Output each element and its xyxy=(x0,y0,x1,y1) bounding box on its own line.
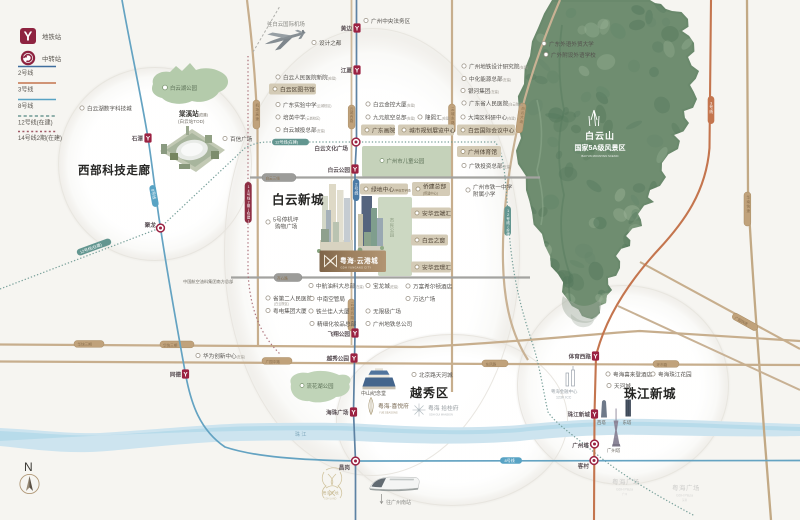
svg-text:YUE SEASONS: YUE SEASONS xyxy=(379,411,398,415)
svg-text:机场高速: 机场高速 xyxy=(256,103,260,121)
svg-text:Y: Y xyxy=(353,330,358,337)
svg-text:广州体育馆: 广州体育馆 xyxy=(468,148,497,156)
svg-text:城市规划展览中心: 城市规划展览中心 xyxy=(409,127,456,135)
svg-text:万达广场: 万达广场 xyxy=(413,295,436,303)
svg-text:百信广场: 百信广场 xyxy=(230,135,253,143)
svg-text:Y: Y xyxy=(352,355,357,362)
svg-text:铁兰佳人大厦: 铁兰佳人大厦 xyxy=(316,308,350,316)
svg-text:天河城: 天河城 xyxy=(614,382,631,390)
svg-text:GDH YUNGANG CITY: GDH YUNGANG CITY xyxy=(341,266,372,269)
svg-text:侨建总部: 侨建总部 xyxy=(423,183,446,191)
svg-text:西部科技走廊: 西部科技走廊 xyxy=(78,163,151,177)
svg-text:附属小学: 附属小学 xyxy=(473,190,496,198)
svg-text:市民公园: 市民公园 xyxy=(390,217,395,238)
svg-text:Y: Y xyxy=(353,166,358,173)
svg-text:广外附设外语学校: 广外附设外语学校 xyxy=(551,51,596,59)
svg-text:无限极广场: 无限极广场 xyxy=(373,308,401,316)
svg-text:海珠广场: 海珠广场 xyxy=(326,409,349,417)
svg-text:越秀区: 越秀区 xyxy=(409,385,449,400)
svg-text:聚龙: 聚龙 xyxy=(144,221,157,229)
svg-text:珠江新城: 珠江新城 xyxy=(568,411,591,419)
svg-text:白云山: 白云山 xyxy=(585,130,615,141)
svg-text:粤海喜来登酒店: 粤海喜来登酒店 xyxy=(613,371,653,379)
svg-text:珠 江: 珠 江 xyxy=(295,431,306,438)
svg-text:Y: Y xyxy=(593,353,598,360)
svg-text:云城西路: 云城西路 xyxy=(351,303,355,320)
svg-text:购物广场: 购物广场 xyxy=(275,223,298,231)
svg-text:中南空管局: 中南空管局 xyxy=(317,295,345,303)
svg-text:广州中央法务区: 广州中央法务区 xyxy=(371,17,411,25)
svg-text:GDH LAND: GDH LAND xyxy=(324,498,337,501)
svg-text:东塔: 东塔 xyxy=(623,419,632,426)
svg-text:东风路: 东风路 xyxy=(486,362,497,367)
svg-text:白云公园: 白云公园 xyxy=(328,166,351,174)
svg-text:Y: Y xyxy=(146,135,151,142)
svg-text:黄边: 黄边 xyxy=(341,25,353,33)
svg-text:广东画院: 广东画院 xyxy=(372,127,395,135)
svg-text:Y: Y xyxy=(24,29,33,44)
svg-text:昌岗: 昌岗 xyxy=(339,464,351,472)
svg-text:深圳: 深圳 xyxy=(682,498,688,502)
svg-text:体育西路: 体育西路 xyxy=(569,353,592,361)
svg-text:中国航空油料集团南方总部: 中国航空油料集团南方总部 xyxy=(183,278,233,285)
svg-text:GDH Plaza: GDH Plaza xyxy=(616,488,633,492)
svg-text:白云新城: 白云新城 xyxy=(272,192,324,207)
svg-text:GDH Plaza: GDH Plaza xyxy=(676,494,693,498)
svg-text:白云区图书馆: 白云区图书馆 xyxy=(280,86,315,94)
svg-text:8号线: 8号线 xyxy=(505,457,515,463)
svg-text:安华云端汇: 安华云端汇 xyxy=(422,210,451,218)
svg-text:(白云院区): (白云院区) xyxy=(274,301,289,306)
svg-text:石潭: 石潭 xyxy=(131,135,144,143)
svg-text:粤海广场: 粤海广场 xyxy=(672,483,700,492)
svg-text:2号线: 2号线 xyxy=(18,69,33,77)
svg-text:设计之都: 设计之都 xyxy=(319,39,342,47)
svg-text:广州市儿童公园: 广州市儿童公园 xyxy=(387,157,425,165)
svg-text:Y: Y xyxy=(355,67,360,74)
svg-text:往白云国际机场: 往白云国际机场 xyxy=(267,20,305,28)
svg-text:白云湖公园: 白云湖公园 xyxy=(170,84,197,92)
svg-text:珠江新城: 珠江新城 xyxy=(624,386,676,401)
svg-text:N: N xyxy=(24,460,33,474)
svg-text:Y: Y xyxy=(355,25,360,32)
svg-text:越秀公园: 越秀公园 xyxy=(326,355,350,363)
svg-text:14号线2期(在建): 14号线2期(在建) xyxy=(18,134,62,142)
svg-text:GDH GUI MANSION: GDH GUI MANSION xyxy=(429,413,453,417)
svg-text:飞翔公园: 飞翔公园 xyxy=(328,330,351,338)
svg-text:同德: 同德 xyxy=(170,371,182,379)
svg-text:粤海 拾桂府: 粤海 拾桂府 xyxy=(428,404,459,412)
svg-text:粤海金融中心: 粤海金融中心 xyxy=(551,388,578,395)
svg-text:白云国际会议中心: 白云国际会议中心 xyxy=(468,127,515,135)
svg-text:西塔: 西塔 xyxy=(597,419,606,426)
svg-text:8号线: 8号线 xyxy=(18,102,33,110)
svg-text:白云之窗: 白云之窗 xyxy=(422,237,445,245)
svg-text:广州市铁一中学: 广州市铁一中学 xyxy=(473,183,513,191)
svg-text:白云湖数字科技城: 白云湖数字科技城 xyxy=(87,105,132,113)
svg-text:广州塔: 广州塔 xyxy=(572,442,589,450)
svg-text:齐心路: 齐心路 xyxy=(277,276,288,281)
svg-text:往广州南站: 往广州南站 xyxy=(386,499,411,506)
svg-text:粤海天地: 粤海天地 xyxy=(323,490,339,496)
svg-text:白云文化广场: 白云文化广场 xyxy=(314,145,348,153)
svg-text:地铁站: 地铁站 xyxy=(42,32,62,41)
svg-text:广园中路: 广园中路 xyxy=(266,359,281,364)
svg-text:3号线: 3号线 xyxy=(18,86,33,94)
svg-text:广州地铁总公司: 广州地铁总公司 xyxy=(373,320,412,328)
svg-text:12号线(在建): 12号线(在建) xyxy=(18,119,53,127)
svg-text:123F ICC: 123F ICC xyxy=(556,396,572,400)
svg-text:中转站: 中转站 xyxy=(42,54,62,63)
svg-text:华快三期: 华快三期 xyxy=(78,342,93,347)
svg-text:中山纪念堂: 中山纪念堂 xyxy=(361,390,386,397)
svg-text:客村: 客村 xyxy=(577,462,590,470)
svg-text:华快三期: 华快三期 xyxy=(163,343,178,348)
svg-text:华南快速: 华南快速 xyxy=(747,195,751,213)
svg-text:粤海珠江花园: 粤海珠江花园 xyxy=(658,371,692,379)
svg-text:Y: Y xyxy=(351,409,356,416)
svg-text:流花湖公园: 流花湖公园 xyxy=(307,382,334,390)
svg-text:安华云璟汇: 安华云璟汇 xyxy=(422,264,451,272)
svg-text:Y: Y xyxy=(592,411,597,418)
svg-text:国家5A级风景区: 国家5A级风景区 xyxy=(575,143,626,152)
svg-text:广东外语外贸大学: 广东外语外贸大学 xyxy=(549,40,594,48)
svg-text:12号线(在建): 12号线(在建) xyxy=(275,139,299,145)
svg-text:万富希尔顿酒店: 万富希尔顿酒店 xyxy=(413,283,453,291)
svg-text:精细化妆品总部: 精细化妆品总部 xyxy=(317,320,357,328)
svg-text:BAIYUN MOUNTAIN SCENIC: BAIYUN MOUNTAIN SCENIC xyxy=(581,154,618,158)
svg-text:(侨建中心): (侨建中心) xyxy=(423,191,438,196)
svg-text:环市路: 环市路 xyxy=(657,362,668,367)
svg-text:云城西路: 云城西路 xyxy=(350,107,354,123)
svg-text:粤海·云港城: 粤海·云港城 xyxy=(340,256,378,265)
svg-text:Y: Y xyxy=(183,371,188,378)
svg-text:(白云站TOD): (白云站TOD) xyxy=(178,118,205,125)
svg-text:广州: 广州 xyxy=(622,492,628,496)
svg-text:北京路天河城: 北京路天河城 xyxy=(419,371,453,379)
svg-text:粤海·喜悦府: 粤海·喜悦府 xyxy=(378,402,409,410)
svg-text:江夏: 江夏 xyxy=(341,67,353,75)
svg-text:粤海广场: 粤海广场 xyxy=(612,477,640,486)
svg-text:云城东路: 云城东路 xyxy=(451,108,455,125)
svg-text:广州地铁设计研究院(在建): 广州地铁设计研究院(在建) xyxy=(469,63,528,71)
svg-text:白云三线: 白云三线 xyxy=(266,176,281,181)
svg-text:5号停机坪: 5号停机坪 xyxy=(273,216,299,224)
svg-text:广州塔: 广州塔 xyxy=(607,447,621,454)
svg-text:粤电集团大厦: 粤电集团大厦 xyxy=(273,307,307,315)
